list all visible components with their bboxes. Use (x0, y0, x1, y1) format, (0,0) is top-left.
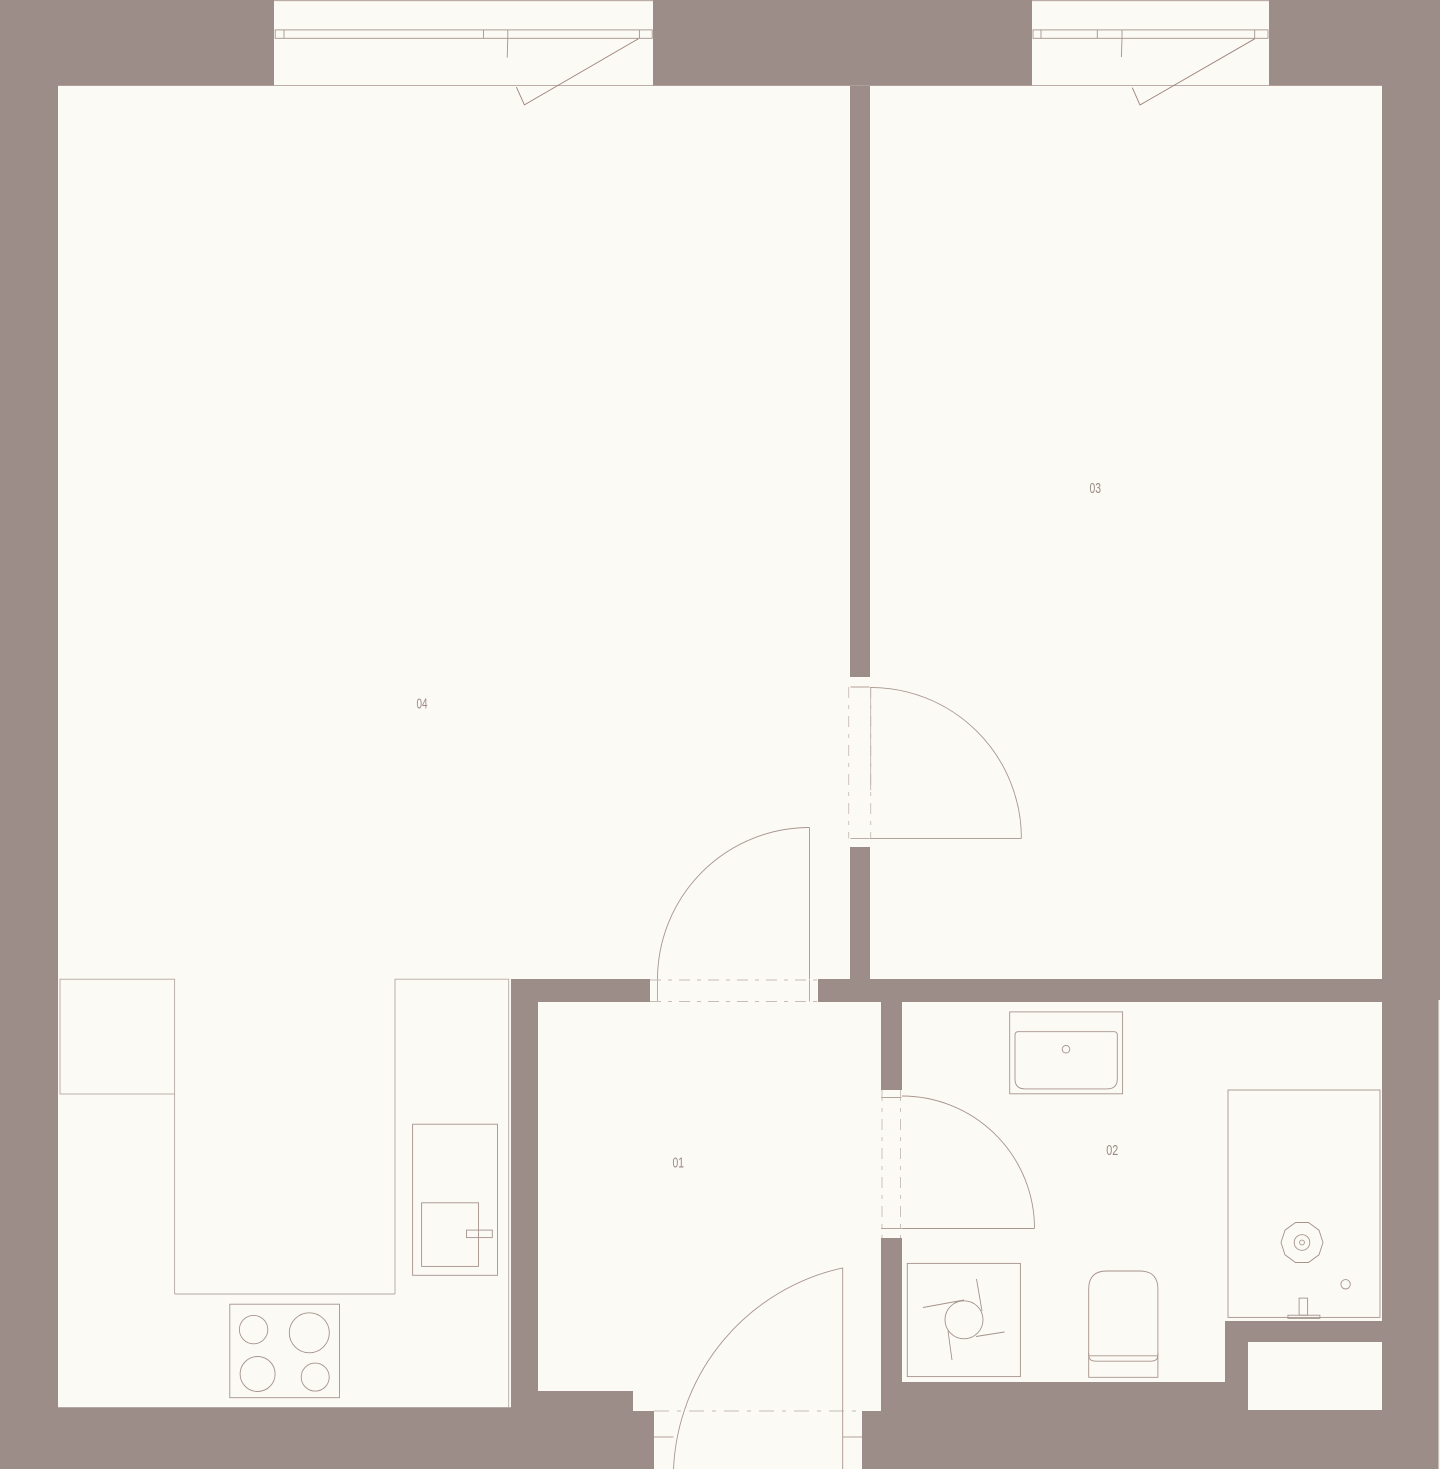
svg-text:02: 02 (1106, 1143, 1118, 1159)
svg-text:01: 01 (673, 1155, 685, 1171)
svg-text:03: 03 (1090, 481, 1102, 497)
svg-text:04: 04 (417, 697, 428, 713)
